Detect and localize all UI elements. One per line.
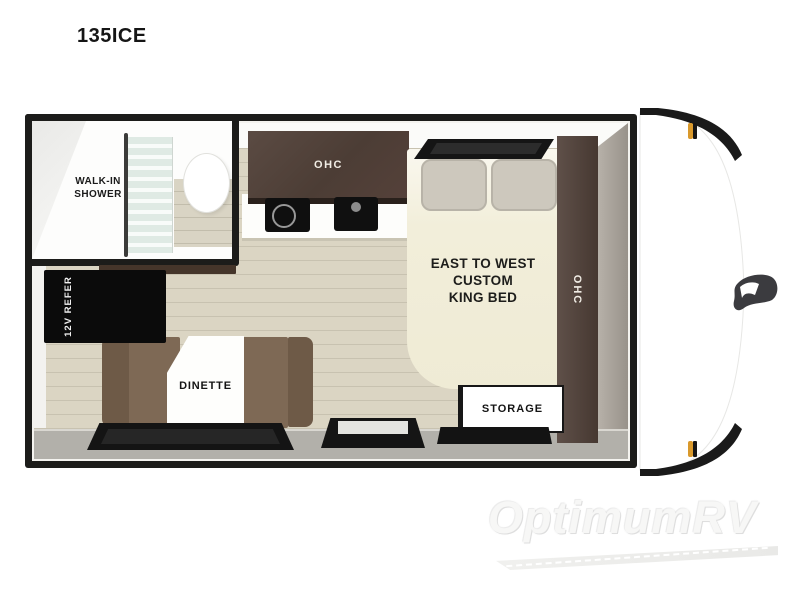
sink-drain-icon [351, 202, 361, 212]
bed-label: EAST TO WEST CUSTOM KING BED [419, 255, 547, 306]
dinette-bench-left-backrest [102, 337, 129, 427]
dinette-bench-right-seat [242, 337, 288, 428]
storage-label: STORAGE [482, 403, 543, 415]
toilet [183, 153, 230, 213]
floorplan-model-title: 135ICE [77, 25, 147, 48]
dinette-window [87, 423, 294, 450]
dinette-label: DINETTE [167, 380, 244, 392]
entry-step-well [321, 418, 425, 448]
trailer-front-cap [628, 103, 780, 481]
bedroom-window-glass [430, 143, 542, 154]
storage-compartment: STORAGE [458, 385, 564, 433]
pillow-right [491, 159, 557, 211]
bathroom: WALK-IN SHOWER [32, 121, 232, 259]
marker-light-icon [688, 441, 693, 457]
kitchen-ohc-label: OHC [314, 159, 343, 171]
cooktop [265, 198, 310, 232]
refrigerator: 12V REFER [44, 270, 166, 343]
shower-glass-door [128, 137, 173, 253]
refrigerator-label: 12V REFER [63, 276, 74, 337]
front-cap-body [640, 112, 744, 470]
front-interior-wall [598, 123, 628, 459]
dealer-watermark: OptimumRV [488, 492, 794, 578]
cooktop-burner-icon [272, 204, 296, 228]
brand-watermark-text: OptimumRV [488, 492, 794, 544]
kitchen-overhead-cabinet: OHC [248, 131, 409, 204]
dinette-bench-right-backrest [288, 337, 313, 427]
road-graphic [496, 546, 778, 570]
bedside-ohc-label: OHC [571, 274, 583, 304]
road-dashes [506, 547, 768, 567]
bedroom-lower-window [437, 427, 552, 444]
bedroom-window [414, 139, 554, 159]
kitchen-sink [334, 197, 378, 231]
marker-light-icon [688, 123, 693, 139]
pillow-left [421, 159, 487, 211]
